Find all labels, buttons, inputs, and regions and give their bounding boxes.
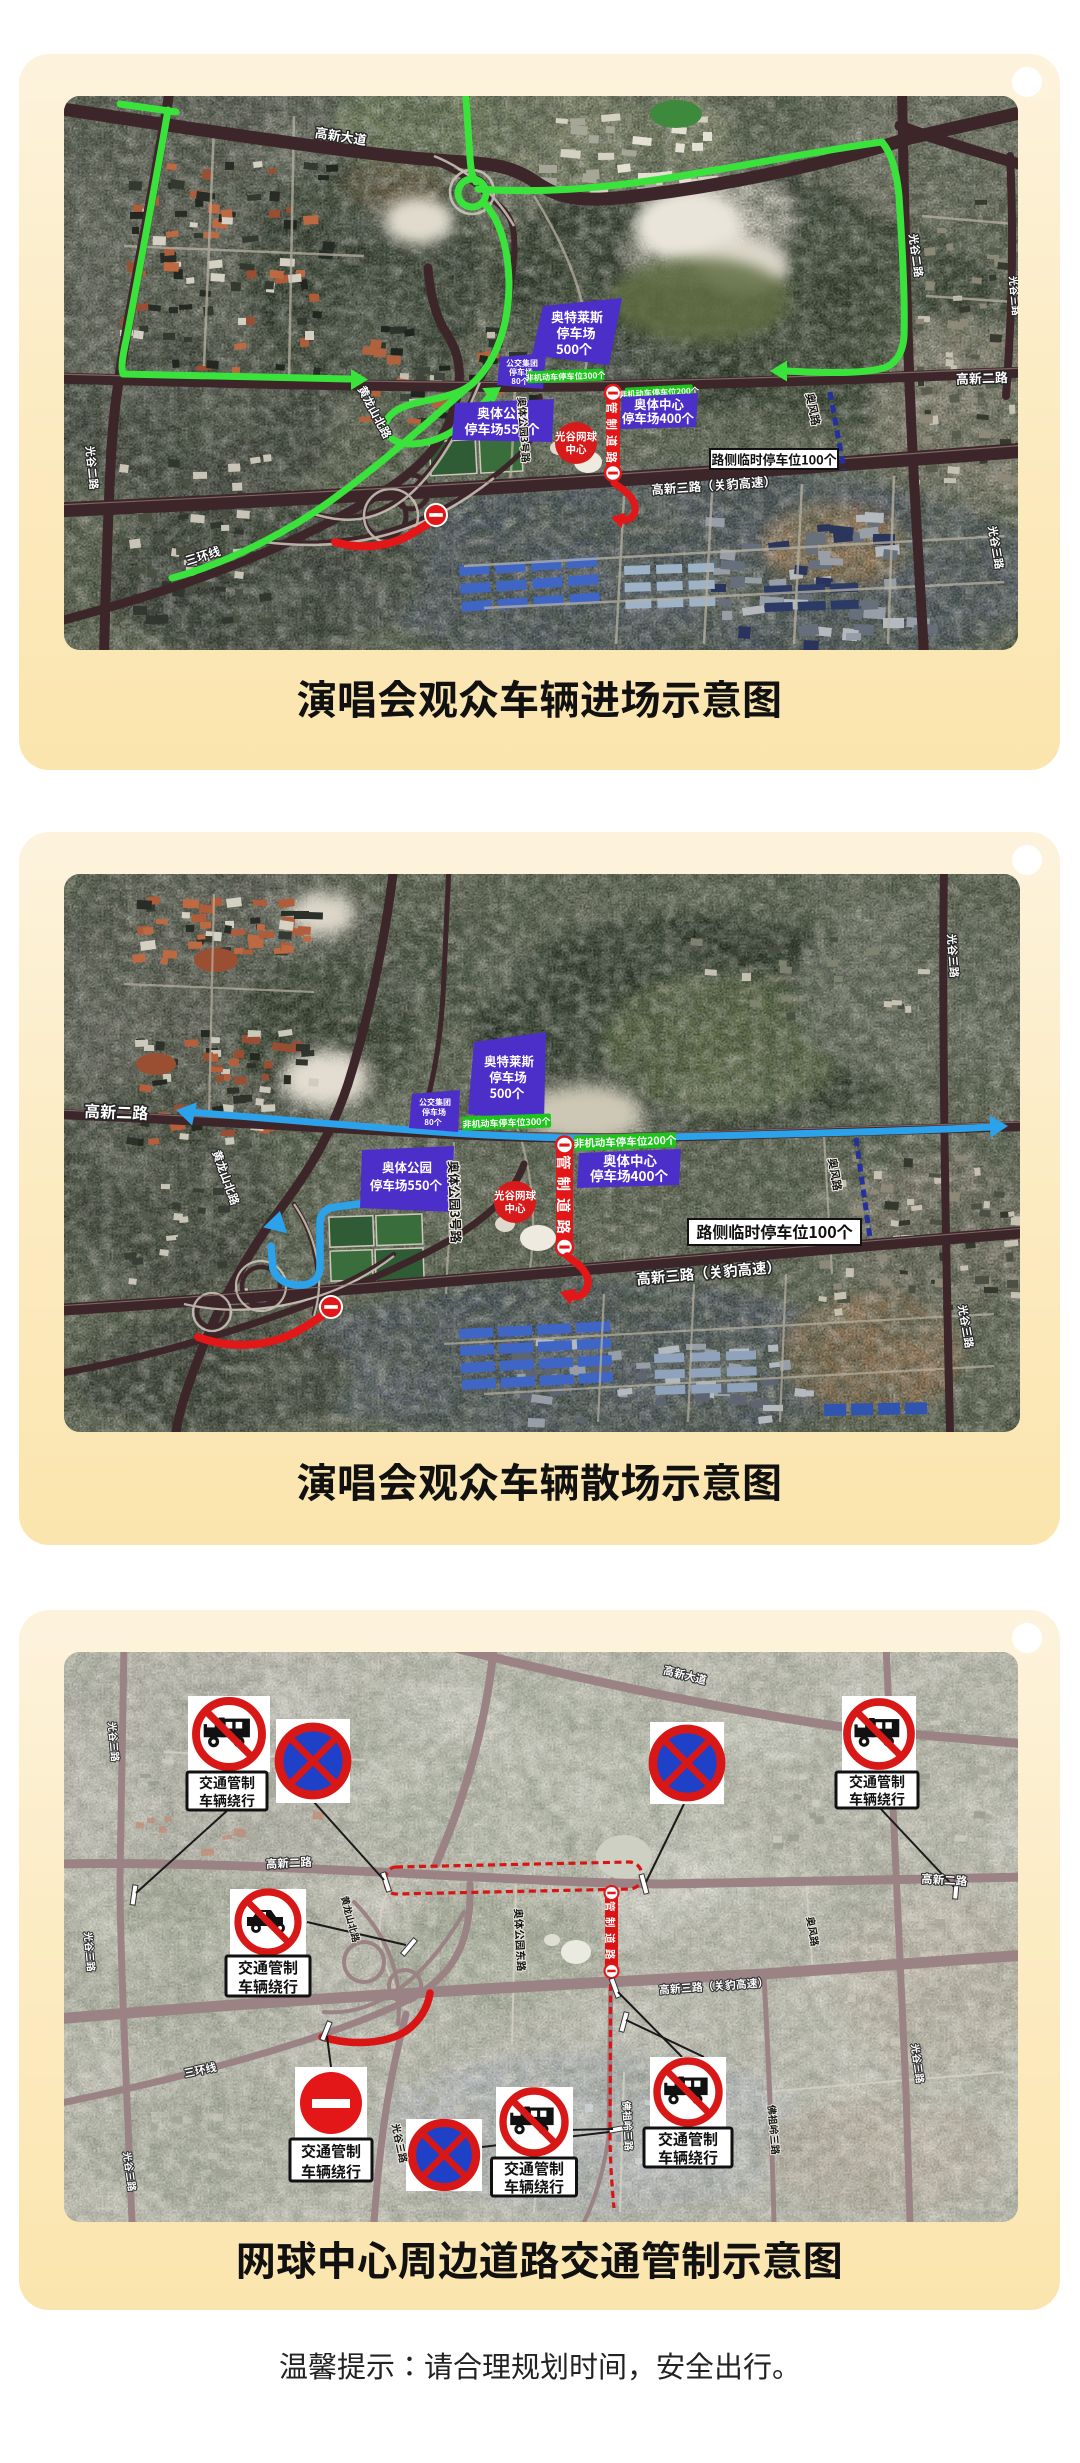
svg-text:车辆绕行: 车辆绕行 xyxy=(849,1789,905,1809)
svg-text:交通管制: 交通管制 xyxy=(199,1773,255,1793)
svg-text:路侧临时停车位100个: 路侧临时停车位100个 xyxy=(696,1219,852,1243)
svg-text:佛祖岭三路: 佛祖岭三路 xyxy=(620,2100,638,2151)
svg-text:500个: 500个 xyxy=(490,1083,525,1102)
svg-text:车辆绕行: 车辆绕行 xyxy=(301,2161,361,2182)
svg-text:光谷三路: 光谷三路 xyxy=(943,933,962,978)
svg-text:高新二路: 高新二路 xyxy=(955,367,1008,388)
svg-text:80个: 80个 xyxy=(424,1117,441,1128)
svg-text:管制道路: 管制道路 xyxy=(603,1901,618,1965)
svg-text:路侧临时停车位100个: 路侧临时停车位100个 xyxy=(711,450,836,469)
svg-text:奥体公园3号路: 奥体公园3号路 xyxy=(445,1160,467,1243)
svg-text:停车场400个: 停车场400个 xyxy=(622,408,695,427)
svg-text:高新二路: 高新二路 xyxy=(921,1871,968,1889)
svg-text:车辆绕行: 车辆绕行 xyxy=(658,2147,718,2168)
svg-text:车辆绕行: 车辆绕行 xyxy=(504,2176,564,2197)
svg-text:车辆绕行: 车辆绕行 xyxy=(238,1976,298,1997)
svg-text:奥体公园: 奥体公园 xyxy=(382,1157,432,1176)
svg-text:停车场550个: 停车场550个 xyxy=(370,1175,443,1194)
svg-text:500个: 500个 xyxy=(556,339,592,358)
svg-text:高新二路: 高新二路 xyxy=(84,1098,149,1124)
svg-text:交通管制: 交通管制 xyxy=(301,2141,361,2162)
svg-text:中心: 中心 xyxy=(505,1201,526,1216)
svg-text:管制道路: 管制道路 xyxy=(604,402,620,468)
svg-text:管制道路: 管制道路 xyxy=(553,1155,574,1241)
svg-text:高新二路: 高新二路 xyxy=(265,1854,312,1872)
svg-text:交通管制: 交通管制 xyxy=(238,1957,298,1978)
svg-text:停车场400个: 停车场400个 xyxy=(590,1165,668,1185)
svg-text:车辆绕行: 车辆绕行 xyxy=(199,1791,255,1811)
svg-text:中心: 中心 xyxy=(566,442,587,457)
